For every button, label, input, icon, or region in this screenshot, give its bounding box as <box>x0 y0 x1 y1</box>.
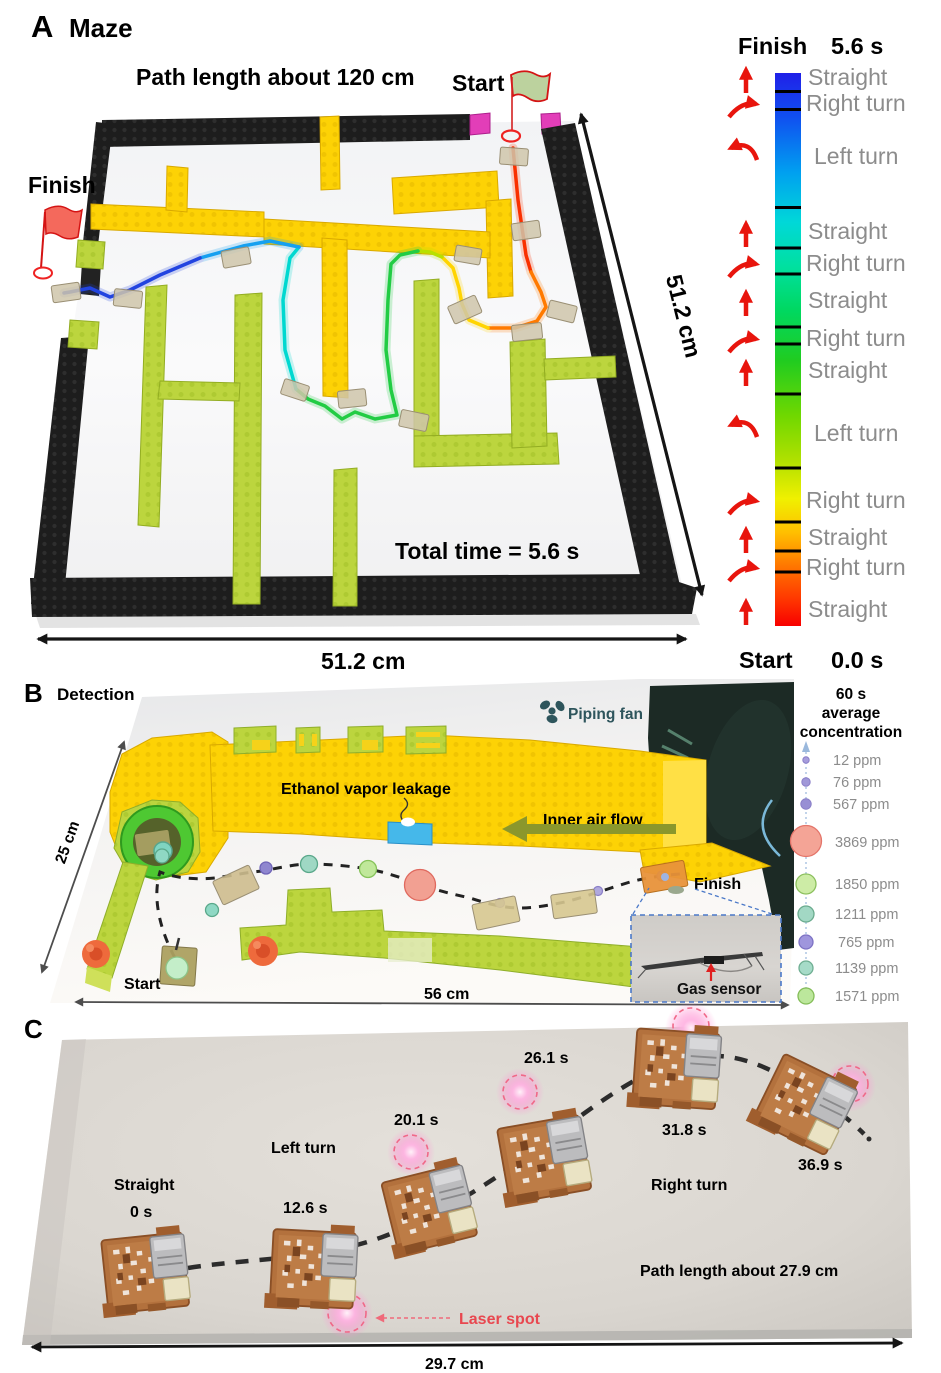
svg-text:Straight: Straight <box>808 524 888 550</box>
svg-text:Laser spot: Laser spot <box>459 1311 541 1328</box>
svg-text:Right turn: Right turn <box>806 554 906 580</box>
svg-text:Finish: Finish <box>738 33 807 59</box>
svg-text:concentration: concentration <box>800 724 902 741</box>
svg-text:1211 ppm: 1211 ppm <box>835 907 898 923</box>
svg-text:Straight: Straight <box>808 64 888 90</box>
svg-text:Path length about 27.9 cm: Path length about 27.9 cm <box>640 1263 838 1280</box>
svg-text:Start: Start <box>452 70 505 96</box>
svg-text:C: C <box>24 1014 43 1044</box>
svg-text:12.6 s: 12.6 s <box>283 1200 328 1217</box>
svg-text:Left turn: Left turn <box>814 420 898 446</box>
svg-text:Straight: Straight <box>808 287 888 313</box>
svg-text:25 cm: 25 cm <box>52 819 83 866</box>
svg-text:Right turn: Right turn <box>651 1177 727 1194</box>
svg-text:76 ppm: 76 ppm <box>833 775 881 791</box>
svg-text:56 cm: 56 cm <box>424 986 469 1003</box>
svg-text:Gas sensor: Gas sensor <box>677 981 761 998</box>
svg-text:12 ppm: 12 ppm <box>833 753 881 769</box>
svg-text:A: A <box>31 9 53 44</box>
svg-text:Right turn: Right turn <box>806 250 906 276</box>
svg-text:Right turn: Right turn <box>806 325 906 351</box>
svg-text:Start: Start <box>124 976 161 993</box>
svg-text:1571 ppm: 1571 ppm <box>835 989 900 1005</box>
svg-text:765 ppm: 765 ppm <box>838 935 894 951</box>
svg-text:1139 ppm: 1139 ppm <box>835 961 898 977</box>
svg-text:5.6 s: 5.6 s <box>831 33 883 59</box>
svg-text:31.8 s: 31.8 s <box>662 1122 707 1139</box>
svg-text:Finish: Finish <box>694 876 741 893</box>
svg-text:20.1 s: 20.1 s <box>394 1112 439 1129</box>
svg-text:Left turn: Left turn <box>271 1140 336 1157</box>
svg-text:567 ppm: 567 ppm <box>833 797 889 813</box>
svg-text:36.9 s: 36.9 s <box>798 1157 843 1174</box>
svg-text:3869 ppm: 3869 ppm <box>835 835 900 851</box>
svg-text:Right turn: Right turn <box>806 487 906 513</box>
svg-text:Total time = 5.6 s: Total time = 5.6 s <box>395 538 579 564</box>
svg-text:B: B <box>24 678 43 708</box>
svg-text:Straight: Straight <box>808 596 888 622</box>
svg-text:0 s: 0 s <box>130 1204 152 1221</box>
svg-text:Straight: Straight <box>114 1177 175 1194</box>
svg-text:0.0 s: 0.0 s <box>831 647 883 673</box>
svg-text:51.2 cm: 51.2 cm <box>321 648 405 674</box>
svg-text:51.2 cm: 51.2 cm <box>661 272 707 360</box>
svg-text:Straight: Straight <box>808 218 888 244</box>
svg-text:Straight: Straight <box>808 357 888 383</box>
svg-text:26.1 s: 26.1 s <box>524 1050 569 1067</box>
svg-text:Start: Start <box>739 647 793 673</box>
svg-text:Maze: Maze <box>69 13 133 43</box>
svg-text:Piping fan: Piping fan <box>568 706 643 723</box>
svg-text:Path length about 120 cm: Path length about 120 cm <box>136 64 415 90</box>
svg-text:Left turn: Left turn <box>814 143 898 169</box>
svg-text:average: average <box>822 705 881 722</box>
svg-text:Finish: Finish <box>28 172 96 198</box>
svg-text:60 s: 60 s <box>836 686 866 703</box>
svg-text:29.7 cm: 29.7 cm <box>425 1356 484 1373</box>
svg-text:Detection: Detection <box>57 685 134 704</box>
svg-text:1850 ppm: 1850 ppm <box>835 877 900 893</box>
svg-text:Ethanol vapor leakage: Ethanol vapor leakage <box>281 781 451 798</box>
svg-text:Right turn: Right turn <box>806 90 906 116</box>
